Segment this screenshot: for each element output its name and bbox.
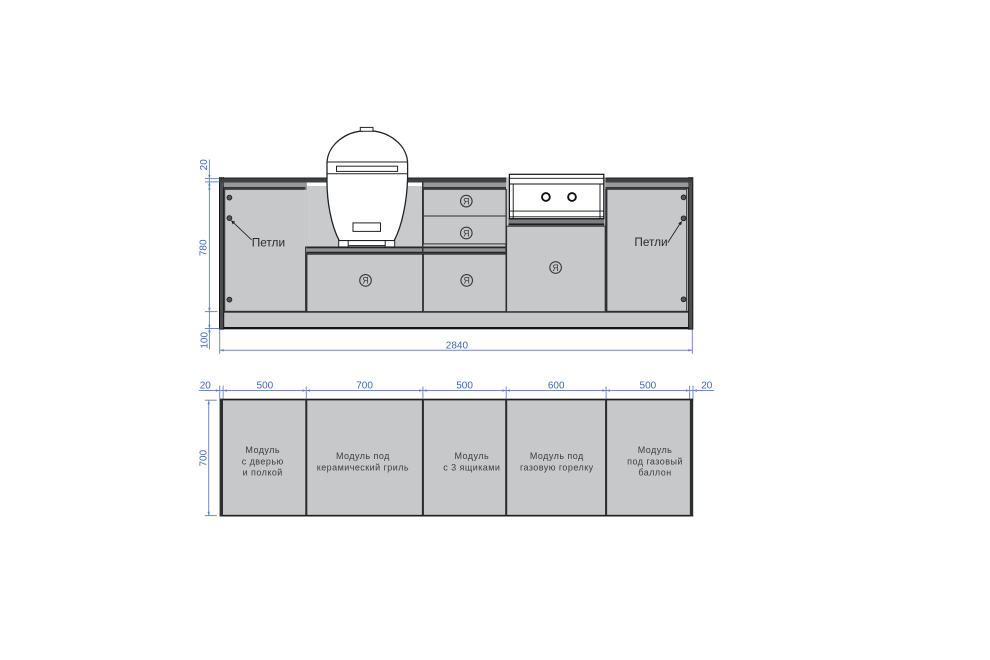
svg-text:керамический гриль: керамический гриль — [317, 463, 409, 473]
svg-text:Модуль: Модуль — [638, 445, 673, 455]
svg-text:500: 500 — [456, 380, 473, 391]
svg-text:Я: Я — [464, 276, 470, 286]
svg-text:500: 500 — [640, 380, 657, 391]
svg-text:Модуль под: Модуль под — [336, 451, 390, 461]
svg-text:с дверью: с дверью — [242, 456, 284, 466]
svg-text:с 3 ящиками: с 3 ящиками — [443, 463, 500, 473]
svg-text:Я: Я — [463, 196, 469, 206]
svg-text:газовую горелку: газовую горелку — [520, 463, 594, 473]
svg-text:Модуль: Модуль — [245, 445, 280, 455]
svg-text:780: 780 — [199, 239, 210, 256]
svg-text:700: 700 — [356, 380, 373, 391]
svg-text:Модуль: Модуль — [454, 451, 489, 461]
svg-text:Я: Я — [362, 276, 368, 286]
svg-text:Петли: Петли — [252, 235, 285, 249]
svg-text:600: 600 — [548, 380, 565, 391]
svg-text:Петли: Петли — [634, 235, 667, 249]
svg-text:2840: 2840 — [446, 341, 469, 352]
svg-text:Я: Я — [552, 263, 558, 273]
svg-text:под газовый: под газовый — [627, 456, 683, 466]
svg-text:500: 500 — [257, 380, 274, 391]
svg-text:баллон: баллон — [638, 467, 671, 477]
svg-text:20: 20 — [200, 380, 212, 391]
svg-text:100: 100 — [199, 332, 210, 349]
svg-text:20: 20 — [199, 159, 210, 171]
svg-text:Модуль под: Модуль под — [530, 451, 584, 461]
svg-text:20: 20 — [701, 380, 713, 391]
svg-text:700: 700 — [199, 449, 210, 466]
svg-text:и полкой: и полкой — [243, 467, 283, 477]
svg-text:Я: Я — [463, 228, 469, 238]
